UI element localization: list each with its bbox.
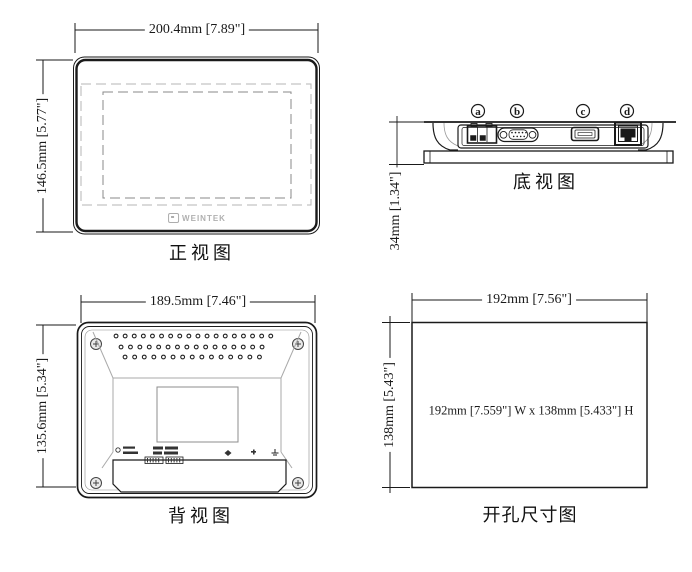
port-label-a: a <box>475 106 481 118</box>
back-silkscreen-markings <box>116 447 279 457</box>
dimension-drawing-sheet: a b c d <box>0 0 692 572</box>
back-height-dimension: 135.6mm [5.34"] <box>35 354 51 458</box>
bottom-view: a b c d <box>389 105 676 171</box>
cutout-size-note: 192mm [7.559"] W x 138mm [5.433"] H <box>429 404 634 419</box>
cutout-view <box>382 293 647 493</box>
bottom-view-label: 底视图 <box>513 168 579 194</box>
power-terminal-connector <box>468 124 497 144</box>
brand-logo-icon <box>168 213 179 223</box>
back-view <box>36 295 317 498</box>
port-label-c: c <box>581 106 586 118</box>
back-bottom-recess <box>113 460 286 492</box>
vent-holes <box>116 336 278 357</box>
cutout-view-label: 开孔尺寸图 <box>483 501 578 527</box>
back-view-label: 背视图 <box>168 502 234 528</box>
port-labels: a b c d <box>472 105 634 119</box>
bottom-height-dimension: 34mm [1.34"] <box>388 168 404 255</box>
bottom-left-flange <box>433 123 458 150</box>
back-center-panel <box>157 387 238 442</box>
front-display-area-dashed <box>103 92 291 198</box>
usb-symbol-mark <box>225 450 232 456</box>
reset-symbol-mark <box>251 450 256 455</box>
drawing-linework: a b c d <box>0 0 692 572</box>
brand-logo-text: WEINTEK <box>182 214 226 223</box>
ethernet-connector <box>615 123 641 146</box>
usb-connector <box>572 128 599 141</box>
ground-symbol-mark <box>272 449 279 455</box>
front-view <box>36 23 320 234</box>
cutout-height-dimension: 138mm [5.43"] <box>382 358 398 452</box>
bottom-base-strip <box>424 151 673 163</box>
front-view-label: 正视图 <box>169 239 235 265</box>
back-width-dimension: 189.5mm [7.46"] <box>146 294 250 310</box>
brand-logo: WEINTEK <box>168 213 226 223</box>
front-width-dimension: 200.4mm [7.89"] <box>145 22 249 38</box>
port-label-b: b <box>514 106 520 118</box>
front-height-dimension: 146.5mm [5.77"] <box>35 94 51 198</box>
front-touch-area-dashed <box>81 84 311 205</box>
port-label-d: d <box>624 106 630 118</box>
serial-db9-connector <box>498 128 538 142</box>
cutout-width-dimension: 192mm [7.56"] <box>482 292 576 308</box>
bottom-left-flange-inner <box>444 123 458 146</box>
bottom-height-dimension-lines <box>389 116 428 170</box>
